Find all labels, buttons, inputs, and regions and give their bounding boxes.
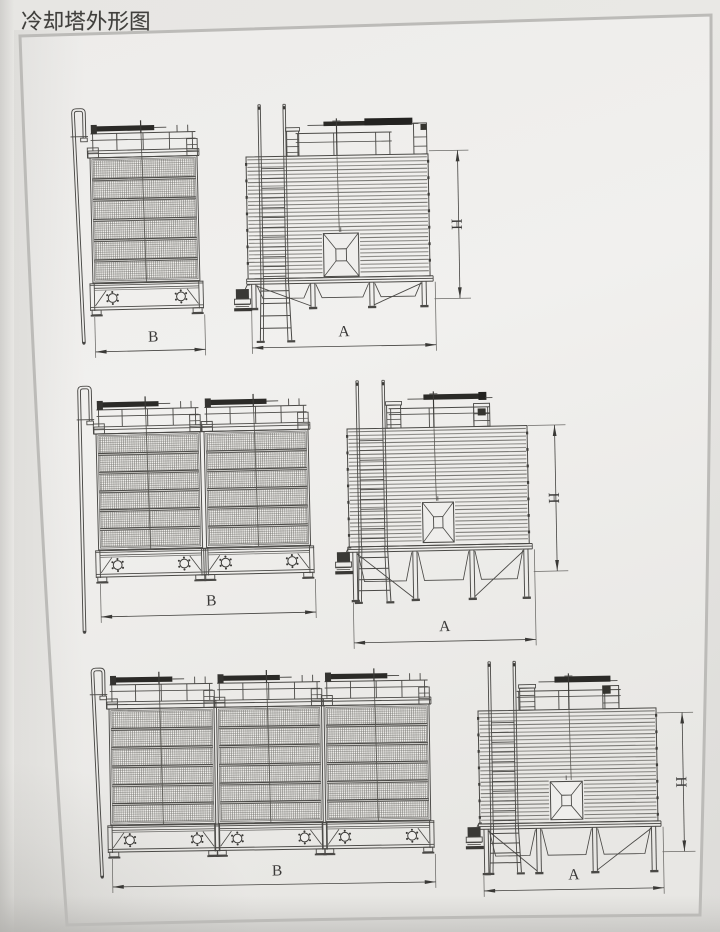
svg-text:B: B xyxy=(148,328,159,345)
svg-text:H: H xyxy=(545,492,562,504)
svg-text:A: A xyxy=(439,618,451,635)
svg-text:B: B xyxy=(206,592,217,609)
svg-text:H: H xyxy=(448,219,465,230)
svg-text:A: A xyxy=(568,866,580,883)
svg-text:H: H xyxy=(672,776,689,787)
svg-text:B: B xyxy=(272,862,283,879)
svg-text:A: A xyxy=(338,323,350,340)
